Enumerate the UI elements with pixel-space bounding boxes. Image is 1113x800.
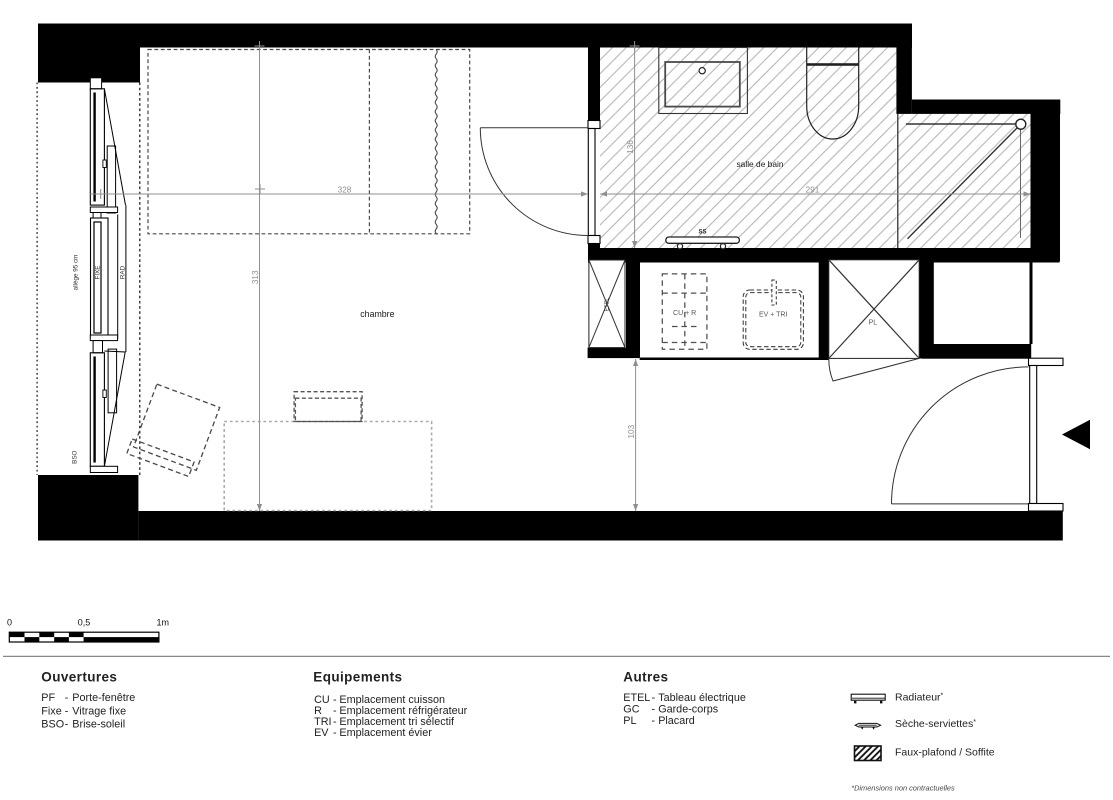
svg-text:BSO: BSO	[41, 719, 64, 731]
svg-text:EV + TRI: EV + TRI	[759, 311, 788, 318]
svg-text:RAD: RAD	[119, 265, 126, 279]
svg-text:-: -	[652, 715, 656, 727]
svg-text:-: -	[65, 705, 69, 717]
svg-text:Radiateur*: Radiateur*	[895, 691, 944, 703]
svg-text:Equipements: Equipements	[313, 669, 402, 684]
svg-text:-: -	[65, 692, 69, 704]
svg-text:Faux-plafond / Soffite: Faux-plafond / Soffite	[895, 747, 995, 759]
svg-text:-: -	[652, 692, 656, 704]
svg-text:Autres: Autres	[623, 669, 668, 684]
svg-text:Emplacement évier: Emplacement évier	[339, 727, 432, 739]
svg-text:103: 103	[627, 424, 636, 438]
svg-text:salle de bain: salle de bain	[736, 159, 783, 169]
svg-text:-: -	[65, 719, 69, 731]
svg-text:ETEL: ETEL	[605, 298, 611, 312]
svg-text:Brise-soleil: Brise-soleil	[72, 719, 125, 731]
svg-text:Garde-corps: Garde-corps	[658, 703, 719, 715]
svg-text:CU + R: CU + R	[673, 310, 696, 317]
svg-text:-: -	[652, 703, 656, 715]
svg-text:FIXE: FIXE	[95, 266, 102, 280]
svg-text:Fixe: Fixe	[41, 705, 61, 717]
svg-text:chambre: chambre	[360, 309, 394, 319]
svg-text:0,5: 0,5	[78, 618, 91, 628]
svg-text:Tableau électrique: Tableau électrique	[658, 692, 746, 704]
svg-text:SS: SS	[698, 230, 706, 236]
svg-text:Ouvertures: Ouvertures	[41, 669, 117, 684]
svg-text:GC: GC	[623, 703, 639, 715]
svg-text:EV: EV	[314, 727, 329, 739]
svg-text:136: 136	[626, 140, 635, 154]
svg-text:ETEL: ETEL	[623, 692, 650, 704]
svg-text:Porte-fenêtre: Porte-fenêtre	[72, 692, 135, 704]
svg-text:BSO: BSO	[72, 450, 79, 463]
svg-text:PL: PL	[623, 715, 636, 727]
svg-text:313: 313	[251, 270, 260, 284]
svg-text:291: 291	[806, 186, 820, 195]
svg-text:Placard: Placard	[658, 715, 695, 727]
svg-text:allège 95 cm: allège 95 cm	[73, 255, 80, 291]
svg-text:PF: PF	[41, 692, 55, 704]
svg-text:328: 328	[338, 186, 352, 195]
svg-text:1m: 1m	[157, 618, 170, 628]
svg-text:-: -	[333, 727, 337, 739]
svg-text:Vitrage fixe: Vitrage fixe	[72, 705, 126, 717]
svg-text:Sèche-serviettes*: Sèche-serviettes*	[895, 718, 976, 730]
svg-text:0: 0	[7, 618, 12, 628]
svg-text:PL: PL	[869, 319, 878, 326]
svg-text:*Dimensions non contractuelles: *Dimensions non contractuelles	[851, 783, 955, 792]
